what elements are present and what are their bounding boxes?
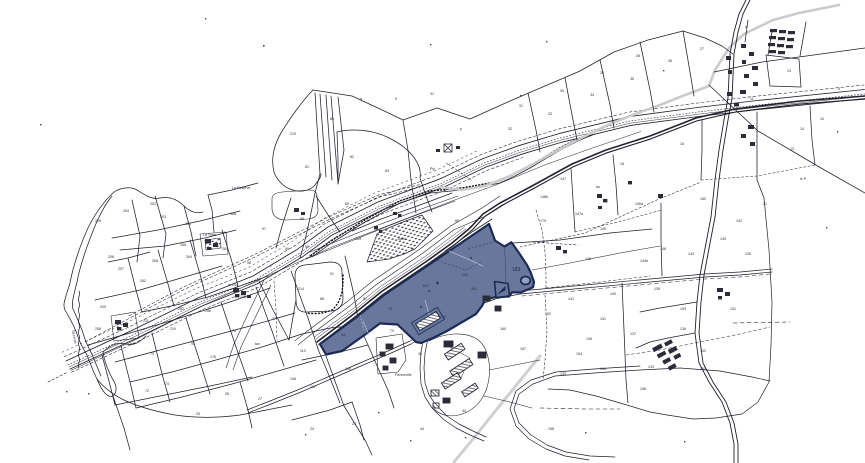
svg-text:30: 30	[560, 89, 564, 93]
svg-text:86: 86	[455, 219, 459, 223]
svg-text:du: du	[596, 185, 600, 189]
svg-text:31: 31	[519, 104, 523, 108]
svg-text:12: 12	[790, 147, 794, 151]
svg-text:148: 148	[660, 247, 666, 251]
svg-text:143: 143	[688, 252, 694, 256]
svg-text:.: .	[330, 257, 331, 261]
svg-text:90: 90	[305, 245, 309, 249]
svg-text:140: 140	[610, 292, 616, 296]
svg-text:139: 139	[654, 287, 660, 291]
svg-text:108: 108	[290, 377, 296, 381]
svg-text:Pyl: Pyl	[430, 167, 435, 171]
svg-text:141: 141	[568, 297, 574, 301]
svg-text:87: 87	[363, 297, 367, 301]
svg-text:163: 163	[462, 273, 468, 277]
svg-text:144: 144	[355, 237, 361, 241]
svg-text:73: 73	[150, 352, 154, 356]
svg-text:151: 151	[600, 317, 606, 321]
svg-text:107: 107	[310, 385, 316, 389]
svg-text:211: 211	[143, 319, 149, 323]
svg-text:85: 85	[345, 202, 349, 206]
svg-text:27: 27	[700, 47, 704, 51]
svg-text:214: 214	[298, 287, 304, 291]
svg-text:Ta: Ta	[410, 247, 414, 251]
svg-text:31: 31	[430, 92, 434, 96]
svg-text:29: 29	[600, 71, 604, 75]
svg-text:134: 134	[600, 367, 606, 371]
svg-text:70: 70	[388, 307, 392, 311]
svg-text:14: 14	[800, 127, 804, 131]
svg-text:p: p	[460, 127, 462, 131]
svg-text:145: 145	[585, 257, 591, 261]
svg-text:27: 27	[258, 397, 262, 401]
svg-text:156: 156	[640, 387, 646, 391]
svg-text:tav: tav	[255, 342, 260, 346]
svg-text:183: 183	[512, 267, 521, 273]
svg-text:146a: 146a	[635, 202, 643, 206]
svg-text:33: 33	[548, 112, 552, 116]
svg-text:152: 152	[545, 312, 551, 316]
svg-text:Taillis: Taillis	[397, 237, 406, 241]
svg-text:28: 28	[636, 54, 640, 58]
svg-text:130: 130	[745, 252, 751, 256]
svg-text:146: 146	[600, 227, 606, 231]
svg-text:150: 150	[700, 197, 706, 201]
svg-text:36: 36	[668, 59, 672, 63]
svg-text:153: 153	[680, 307, 686, 311]
svg-text:15: 15	[680, 142, 684, 146]
svg-text:10: 10	[820, 117, 824, 121]
svg-text:142: 142	[736, 219, 742, 223]
svg-text:132: 132	[700, 349, 706, 353]
svg-text:135: 135	[560, 372, 566, 376]
svg-text:155: 155	[700, 367, 706, 371]
svg-text:9: 9	[838, 87, 840, 91]
svg-text:83: 83	[385, 169, 389, 173]
svg-text:256: 256	[205, 309, 211, 313]
svg-text:209: 209	[100, 305, 106, 309]
svg-text:31: 31	[763, 202, 767, 206]
svg-text:262: 262	[140, 279, 146, 283]
svg-text:154: 154	[576, 352, 582, 356]
svg-text:160: 160	[500, 327, 506, 331]
svg-text:23: 23	[352, 422, 356, 426]
svg-text:208: 208	[95, 327, 101, 331]
svg-text:149: 149	[720, 237, 726, 241]
svg-text:25: 25	[196, 412, 200, 416]
svg-text:34: 34	[590, 93, 594, 97]
svg-text:148b: 148b	[540, 195, 548, 199]
svg-text:158: 158	[548, 427, 554, 431]
svg-text:205: 205	[95, 219, 101, 223]
svg-text:79: 79	[390, 329, 394, 333]
svg-text:81: 81	[305, 165, 309, 169]
svg-text:204: 204	[123, 209, 129, 213]
svg-text:257: 257	[178, 307, 184, 311]
svg-text:La Reserve: La Reserve	[232, 186, 250, 190]
svg-text:82: 82	[350, 155, 354, 159]
svg-text:207: 207	[118, 267, 124, 271]
svg-text:110: 110	[300, 349, 306, 353]
svg-text:133: 133	[648, 365, 654, 369]
svg-text:77: 77	[272, 317, 276, 321]
svg-text:76: 76	[232, 329, 236, 333]
svg-text:202: 202	[150, 202, 156, 206]
svg-text:219: 219	[290, 132, 296, 136]
svg-text:La Torre: La Torre	[203, 233, 216, 237]
svg-text:147: 147	[560, 177, 566, 181]
svg-text:157: 157	[520, 347, 526, 351]
svg-text:203: 203	[160, 215, 166, 219]
svg-text:Penneville: Penneville	[395, 373, 412, 377]
svg-text:98: 98	[247, 261, 251, 265]
svg-text:138: 138	[586, 337, 592, 341]
svg-text:97: 97	[262, 227, 266, 231]
svg-text:162: 162	[440, 315, 446, 319]
svg-text:75: 75	[190, 342, 194, 346]
svg-text:176: 176	[210, 355, 216, 359]
svg-text:255: 255	[240, 295, 246, 299]
svg-text:24: 24	[310, 427, 314, 431]
svg-text:16: 16	[620, 162, 624, 166]
svg-text:137: 137	[630, 332, 636, 336]
svg-text:72: 72	[145, 389, 149, 393]
svg-text:89: 89	[300, 217, 304, 221]
svg-text:a: a	[360, 97, 362, 101]
svg-text:80: 80	[330, 117, 334, 121]
svg-text:144b: 144b	[640, 259, 648, 263]
svg-text:265: 265	[152, 259, 158, 263]
svg-text:43: 43	[462, 409, 466, 413]
svg-text:44: 44	[420, 427, 424, 431]
svg-text:88: 88	[320, 297, 324, 301]
svg-text:147a: 147a	[575, 212, 583, 216]
svg-text:13: 13	[787, 69, 791, 73]
svg-text:45: 45	[418, 352, 422, 356]
svg-text:a4: a4	[130, 342, 134, 346]
svg-text:99: 99	[285, 247, 289, 251]
svg-text:91: 91	[330, 272, 334, 276]
svg-text:106: 106	[345, 367, 351, 371]
svg-text:210: 210	[170, 327, 176, 331]
svg-text:264: 264	[186, 255, 192, 259]
svg-text:206: 206	[108, 255, 114, 259]
svg-text:131: 131	[730, 307, 736, 311]
svg-text:201: 201	[185, 222, 191, 226]
svg-text:35: 35	[630, 77, 634, 81]
svg-text:9: 9	[395, 97, 397, 101]
svg-text:le P: le P	[800, 177, 807, 181]
svg-text:74: 74	[165, 382, 169, 386]
svg-text:136: 136	[680, 327, 686, 331]
svg-text:161: 161	[471, 287, 477, 291]
svg-text:88: 88	[341, 332, 346, 337]
svg-text:32: 32	[508, 127, 512, 131]
svg-text:26: 26	[225, 392, 229, 396]
svg-text:266: 266	[180, 243, 186, 247]
svg-text:263: 263	[222, 247, 228, 251]
svg-text:le Csy: le Csy	[228, 283, 238, 287]
svg-text:le: le	[745, 25, 748, 29]
svg-text:179: 179	[540, 219, 546, 223]
svg-text:11: 11	[750, 97, 754, 101]
svg-text:182: 182	[422, 283, 429, 288]
svg-text:98a: 98a	[230, 212, 236, 216]
